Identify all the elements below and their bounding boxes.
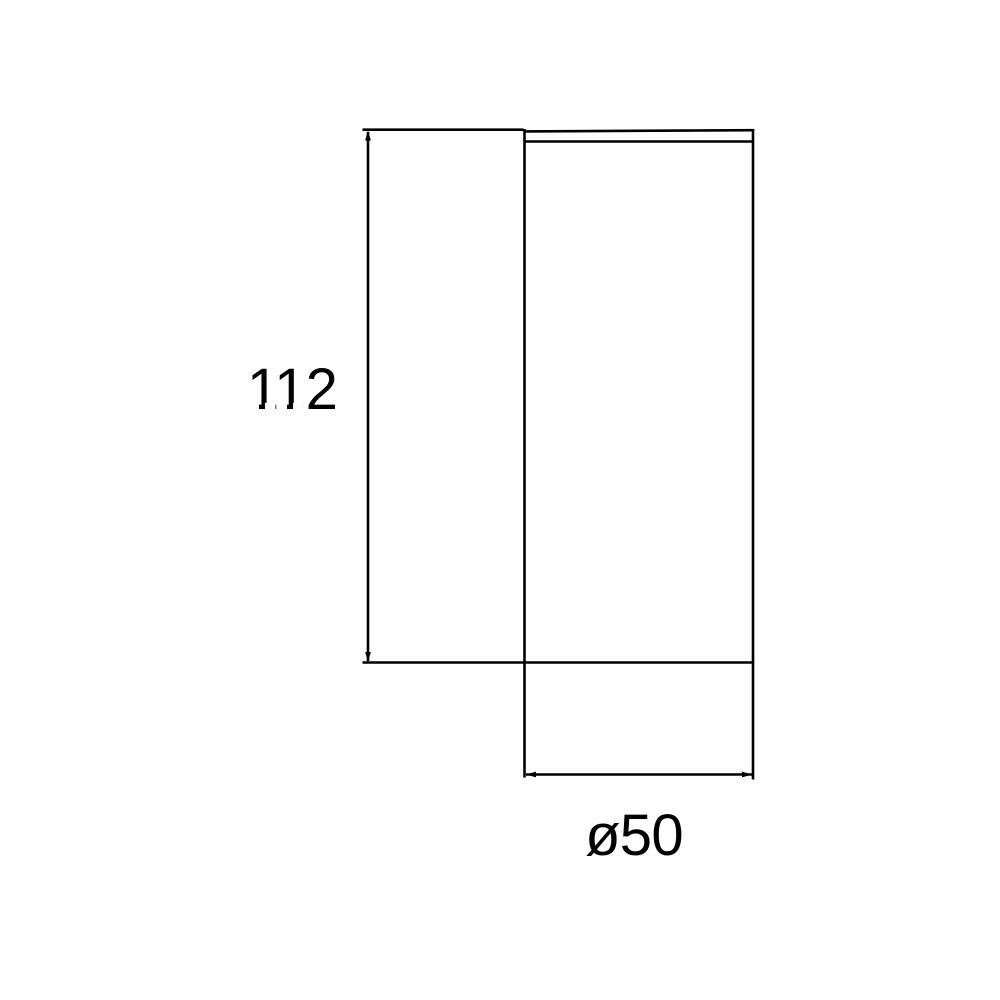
svg-text:ø50: ø50 <box>585 803 683 868</box>
svg-text:112: 112 <box>247 357 337 422</box>
